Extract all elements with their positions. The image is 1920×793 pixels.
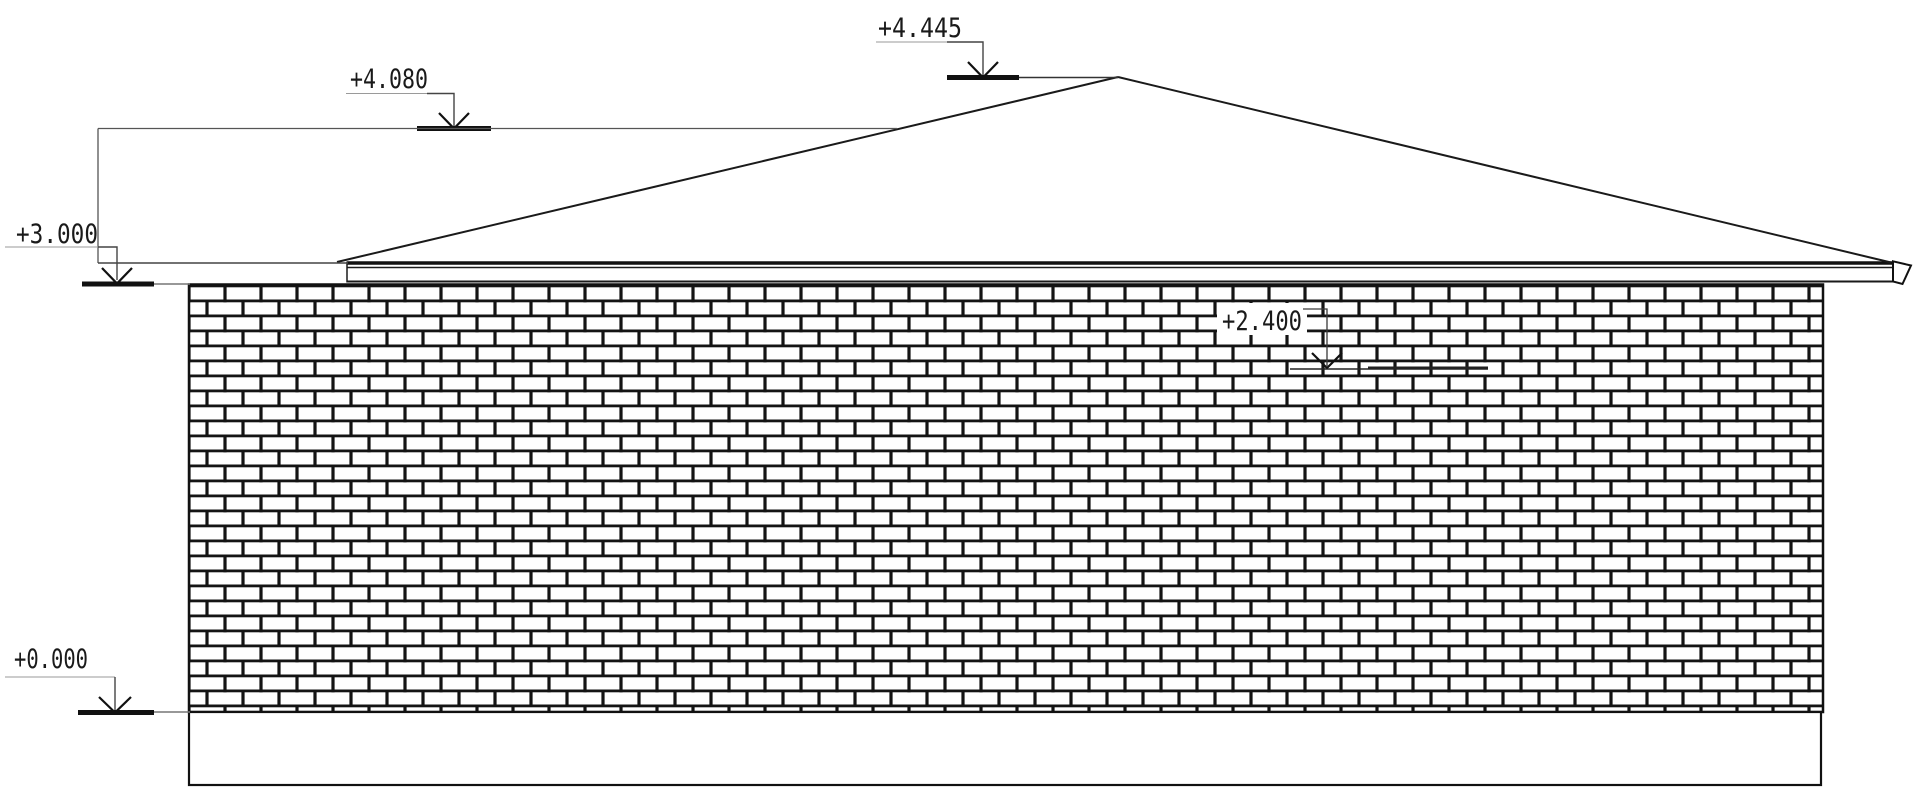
brick-wall — [189, 285, 1823, 713]
level-label-wall-mid: +2.400 — [1222, 306, 1302, 337]
eave-fascia — [347, 261, 1911, 284]
level-label-ridge: +4.445 — [878, 13, 962, 44]
roof-right-slope — [1118, 77, 1891, 263]
level-marker-ground: +0.000 — [5, 644, 190, 713]
level-marker-ridge: +4.445 — [876, 13, 1019, 78]
level-label-roof-upper: +4.080 — [350, 64, 428, 95]
ridge-leader-line — [947, 42, 983, 75]
roof-upper-leader-line — [427, 94, 454, 127]
fascia-right-cap — [1893, 261, 1911, 284]
level-label-ground: +0.000 — [14, 644, 88, 675]
level-label-eave: +3.000 — [16, 219, 98, 250]
roof — [337, 77, 1891, 263]
building — [189, 77, 1911, 785]
level-marker-roof-upper: +4.080 — [98, 64, 897, 263]
elevation-sheet: +4.445 +4.080 +3.000 — [0, 0, 1920, 793]
plinth — [189, 712, 1821, 785]
elevation-drawing: +4.445 +4.080 +3.000 — [0, 0, 1920, 793]
